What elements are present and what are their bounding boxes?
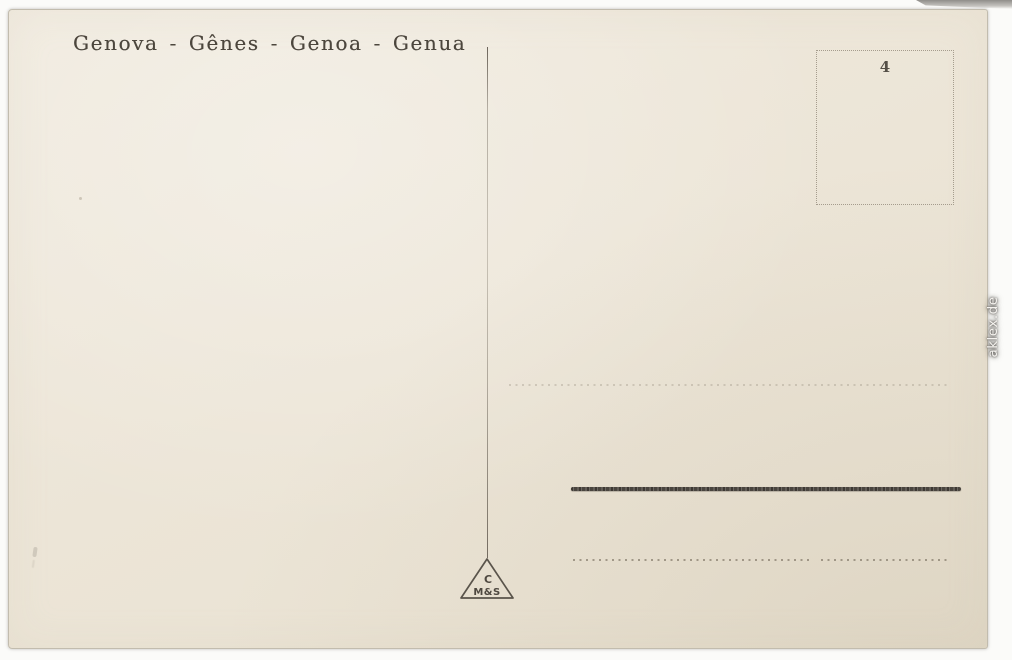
- postcard-title: Genova - Gênes - Genoa - Genua: [73, 31, 466, 55]
- pencil-smudge: [32, 547, 37, 557]
- address-dotted-line-1: [509, 384, 949, 386]
- heavy-ink-rule: [571, 487, 961, 491]
- address-dotted-line-2-right: [821, 559, 951, 561]
- scanner-edge-artifact: [916, 0, 1012, 9]
- scan-background: Genova - Gênes - Genoa - Genua 4 C M&S a…: [0, 0, 1012, 660]
- paper-speck: [79, 197, 82, 200]
- stamp-number: 4: [817, 58, 953, 76]
- postcard-back: Genova - Gênes - Genoa - Genua 4 C M&S: [8, 9, 988, 649]
- center-divider-line: [487, 47, 488, 558]
- publisher-initial-top: C: [484, 573, 492, 586]
- publisher-logo-triangle: C M&S: [457, 556, 517, 602]
- publisher-initials-bottom: M&S: [473, 587, 500, 598]
- address-dotted-line-2-left: [573, 559, 811, 561]
- stamp-box: 4: [816, 50, 954, 205]
- watermark: aklex.de: [984, 282, 1002, 372]
